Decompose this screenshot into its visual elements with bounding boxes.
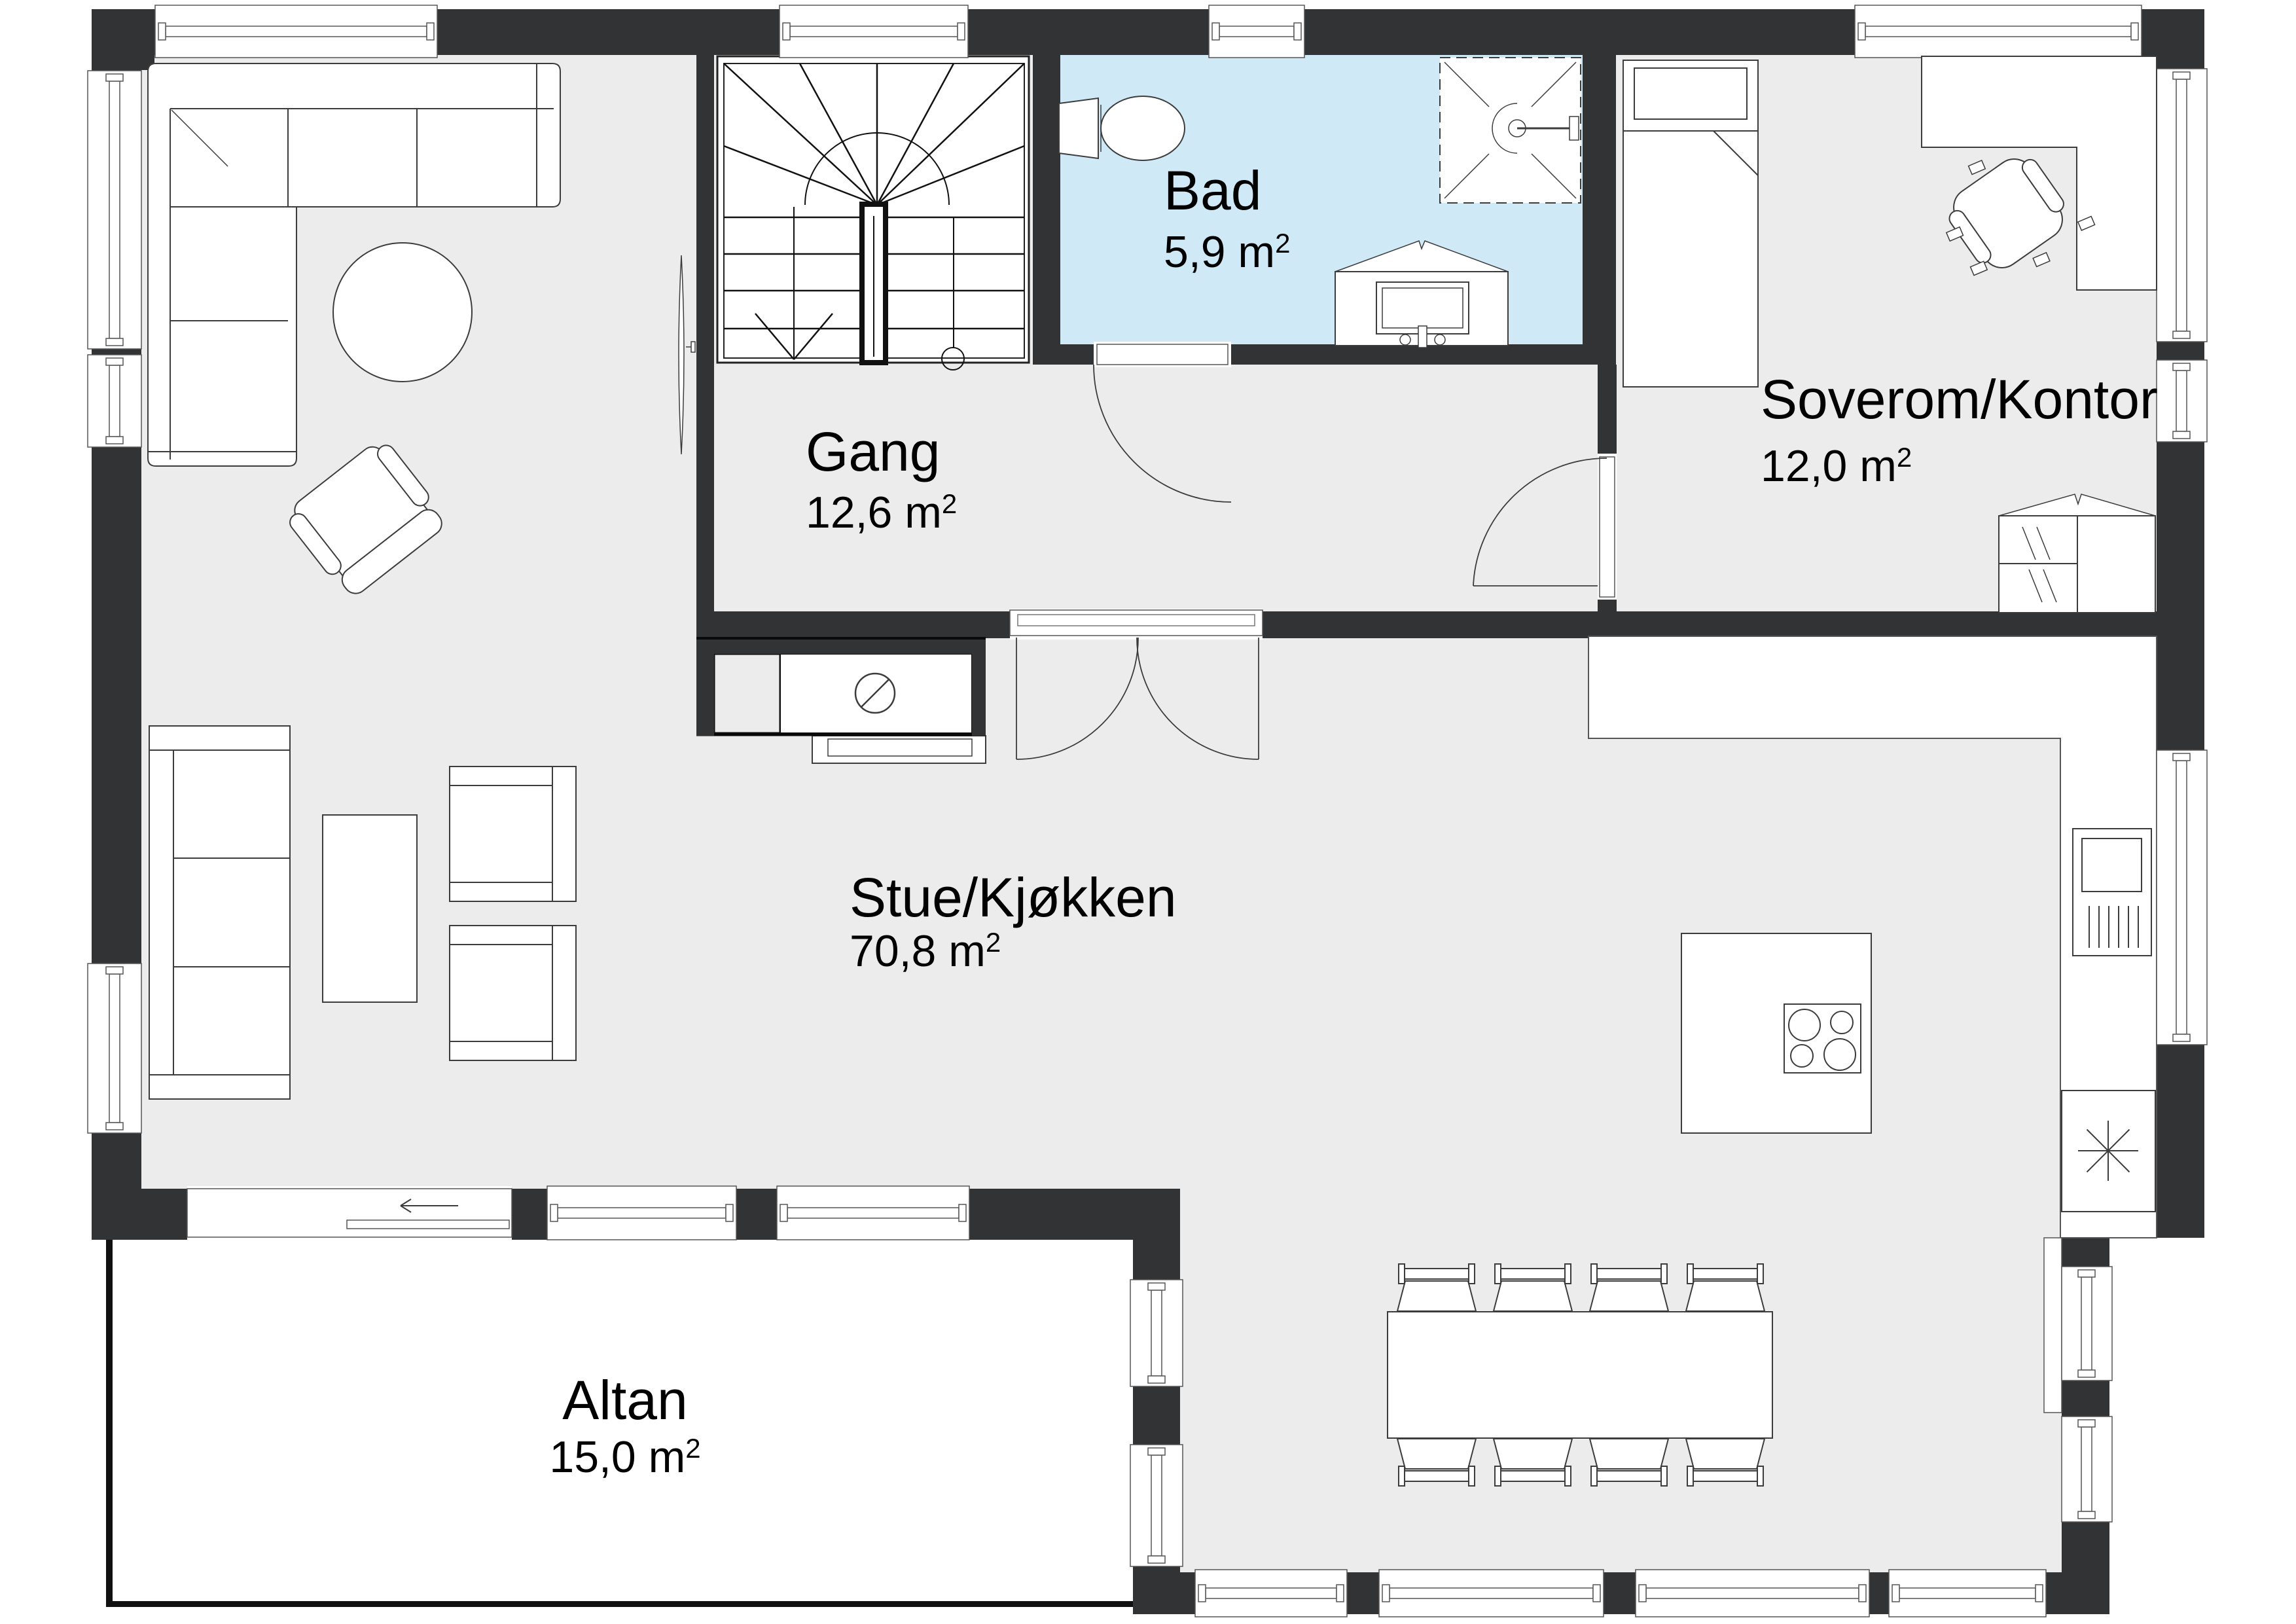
svg-text:15,0 m2: 15,0 m2 bbox=[549, 1432, 700, 1482]
svg-text:12,0 m2: 12,0 m2 bbox=[1761, 441, 1912, 491]
svg-text:5,9 m2: 5,9 m2 bbox=[1164, 227, 1290, 277]
svg-text:Soverom/Kontor: Soverom/Kontor bbox=[1761, 369, 2158, 430]
svg-text:Altan: Altan bbox=[562, 1369, 687, 1431]
svg-text:Gang: Gang bbox=[806, 421, 941, 482]
svg-text:Stue/Kjøkken: Stue/Kjøkken bbox=[850, 867, 1177, 928]
svg-text:70,8 m2: 70,8 m2 bbox=[850, 926, 1001, 976]
svg-text:Bad: Bad bbox=[1164, 160, 1261, 221]
svg-text:12,6 m2: 12,6 m2 bbox=[806, 488, 957, 537]
